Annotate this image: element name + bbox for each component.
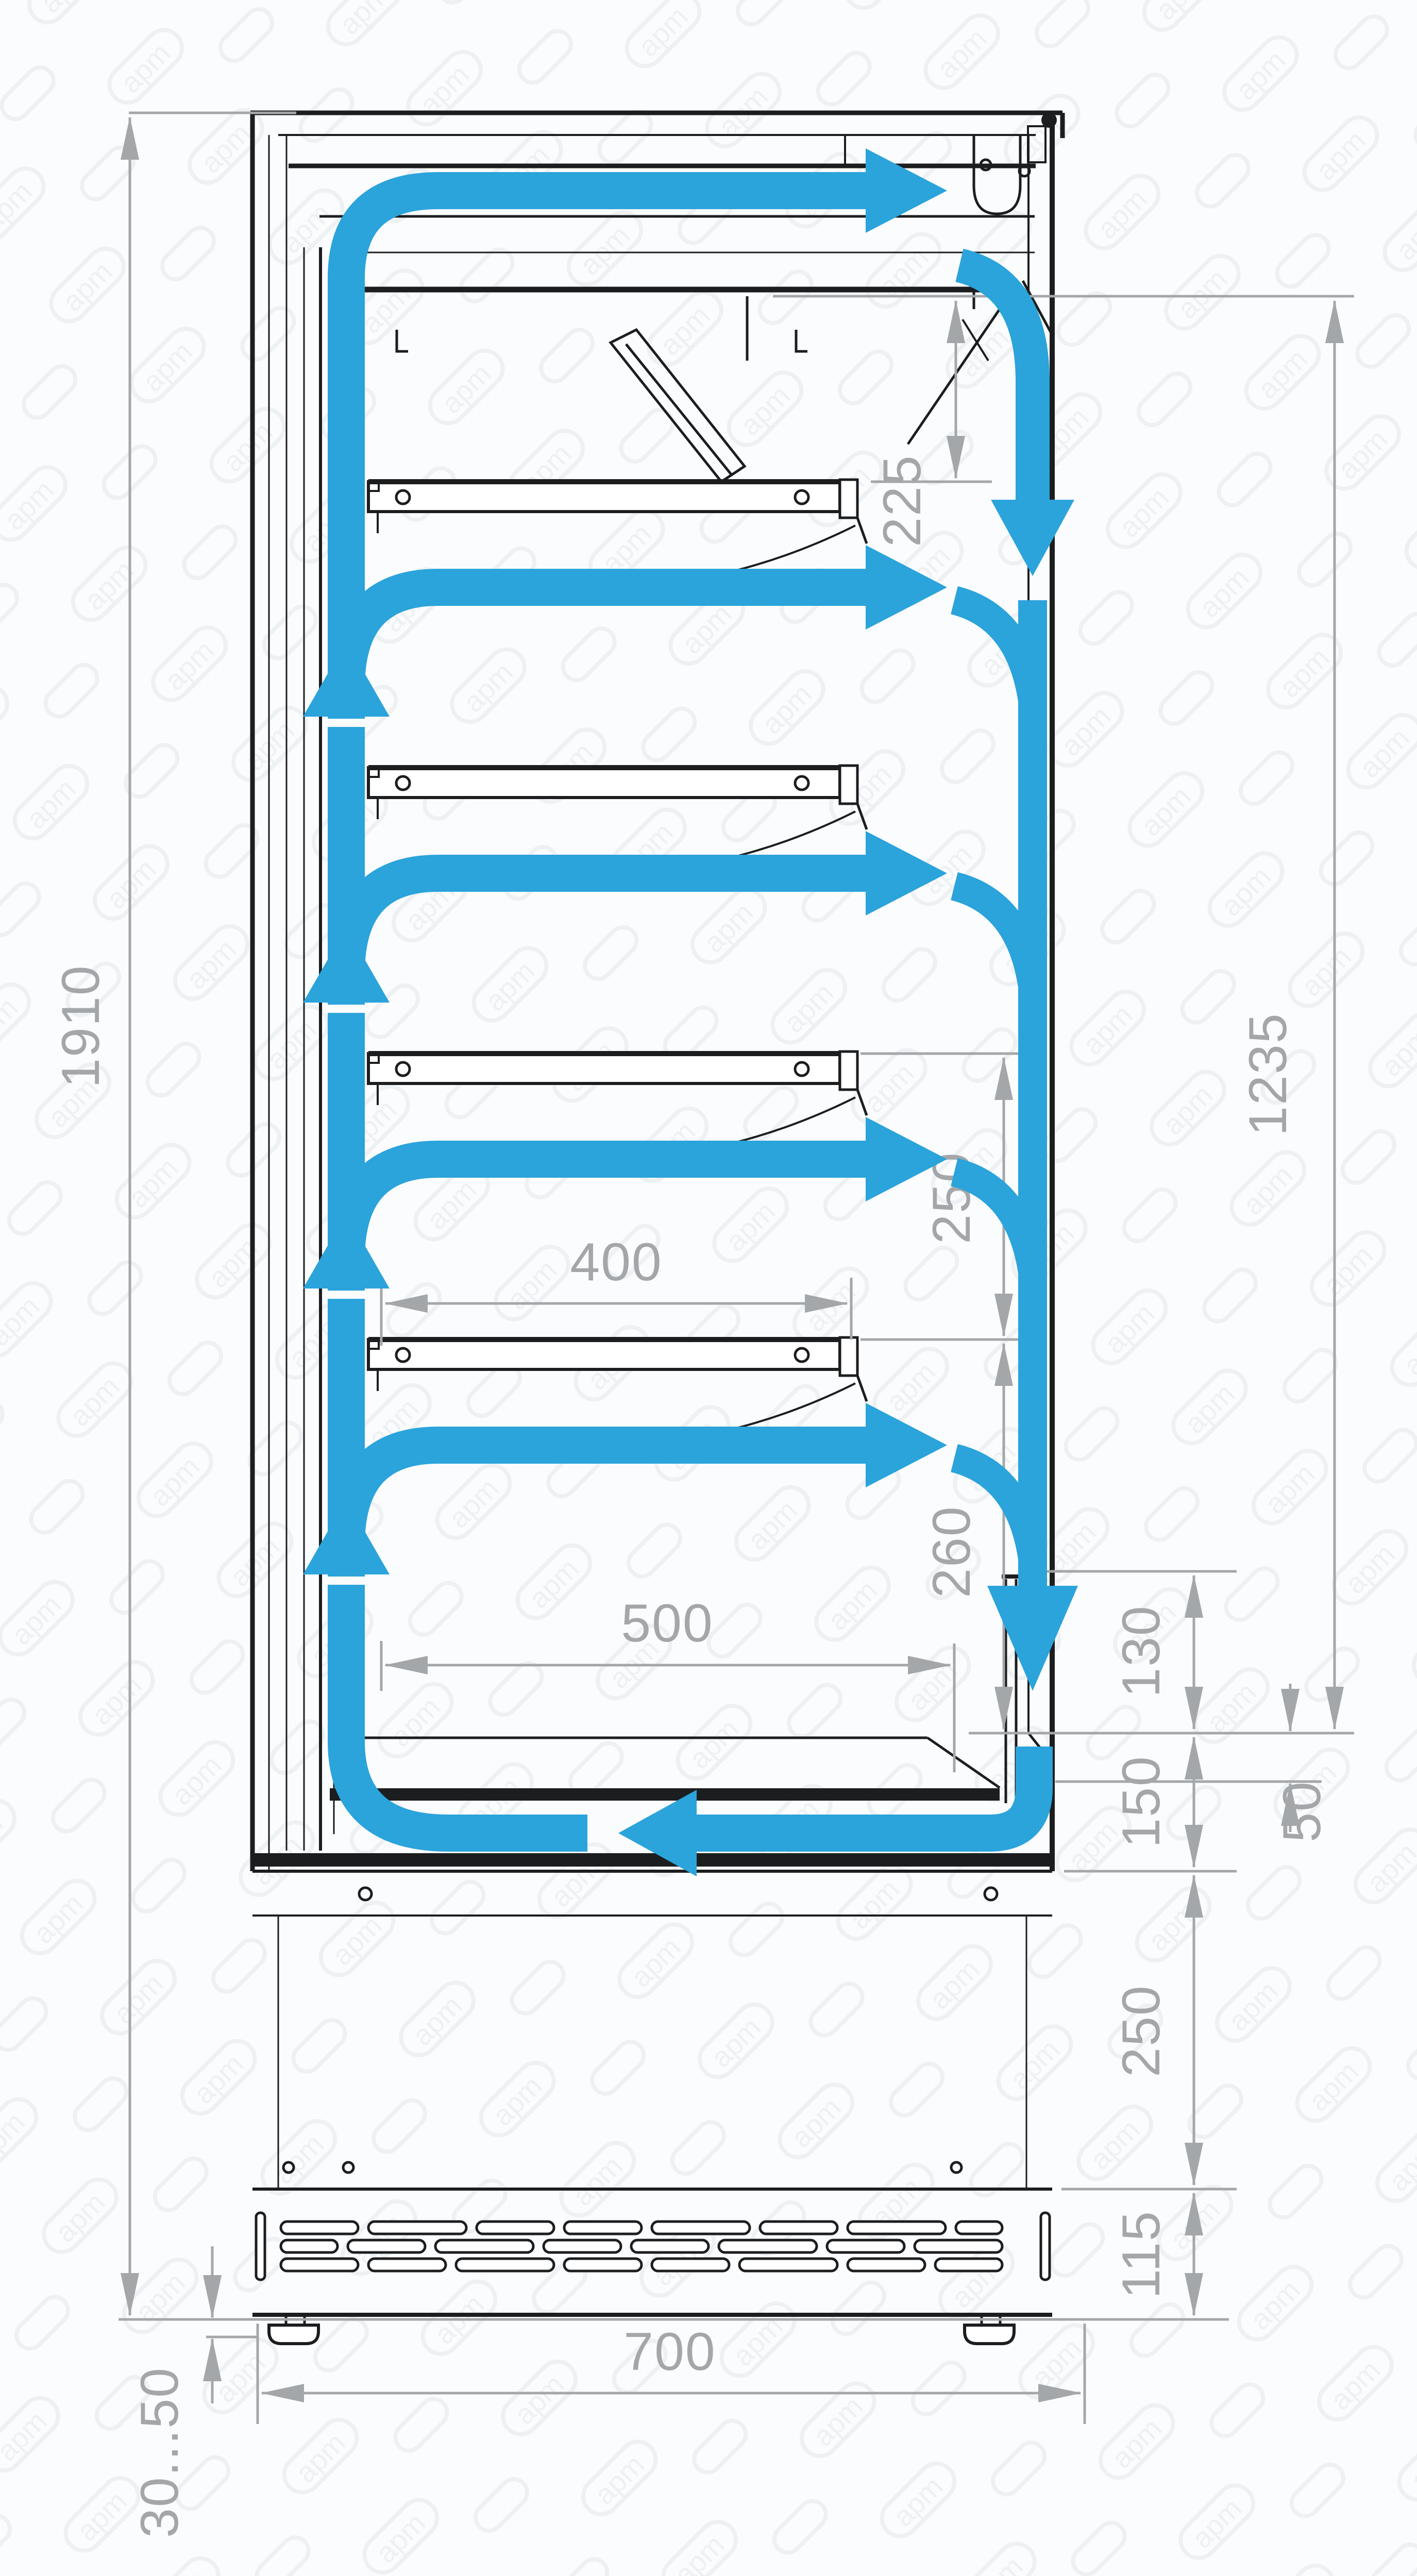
dim-base-height: 250 bbox=[1111, 1985, 1171, 2077]
dim-bottom-shelf-depth: 500 bbox=[621, 1594, 714, 1653]
dim-canopy-to-first-shelf: 225 bbox=[872, 454, 932, 547]
dim-last-shelf-to-well: 260 bbox=[922, 1505, 982, 1598]
dim-feet-height: 30...50 bbox=[130, 2367, 190, 2538]
dim-shelf-depth: 400 bbox=[570, 1232, 663, 1292]
dim-overall-height: 1910 bbox=[51, 964, 111, 1088]
dim-deck-step: 50 bbox=[1272, 1781, 1332, 1842]
dim-vent-height: 115 bbox=[1111, 2210, 1171, 2299]
dim-base-depth: 700 bbox=[623, 2322, 716, 2382]
dim-sill-height: 130 bbox=[1111, 1605, 1171, 1698]
display-case-airflow-diagram: apm bbox=[0, 0, 1417, 2576]
dim-well-depth: 150 bbox=[1111, 1755, 1171, 1848]
diagram-page: apm bbox=[0, 0, 1417, 2576]
dim-air-curtain-height: 1235 bbox=[1238, 1012, 1298, 1136]
